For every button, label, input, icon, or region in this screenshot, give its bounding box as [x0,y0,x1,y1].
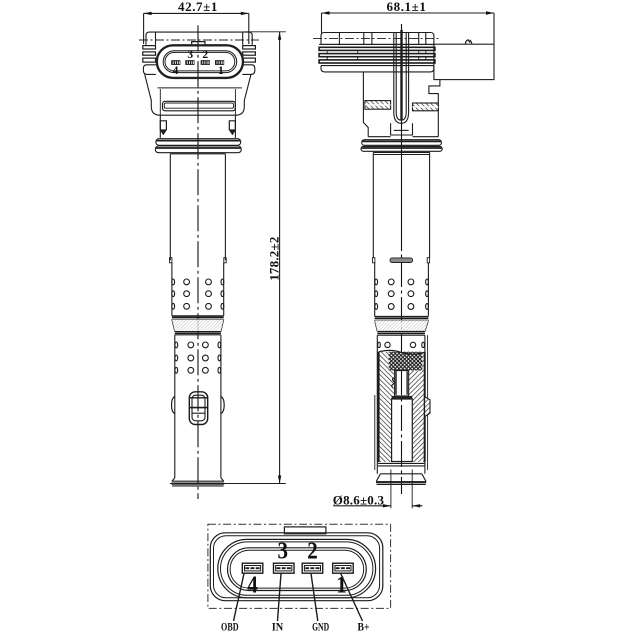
svg-text:3: 3 [278,539,289,565]
svg-text:42.7±1: 42.7±1 [178,0,218,14]
svg-text:68.1±1: 68.1±1 [387,0,427,14]
svg-text:2: 2 [307,539,318,565]
svg-text:1: 1 [218,65,224,77]
svg-text:B+: B+ [358,620,370,634]
svg-text:178.2±2: 178.2±2 [267,236,282,280]
svg-text:OBD: OBD [221,620,239,634]
svg-text:4: 4 [173,65,179,77]
svg-text:3: 3 [187,49,193,61]
svg-text:2: 2 [202,49,208,61]
svg-text:GND: GND [312,620,329,634]
svg-text:IN: IN [272,620,284,634]
svg-text:4: 4 [247,573,258,599]
